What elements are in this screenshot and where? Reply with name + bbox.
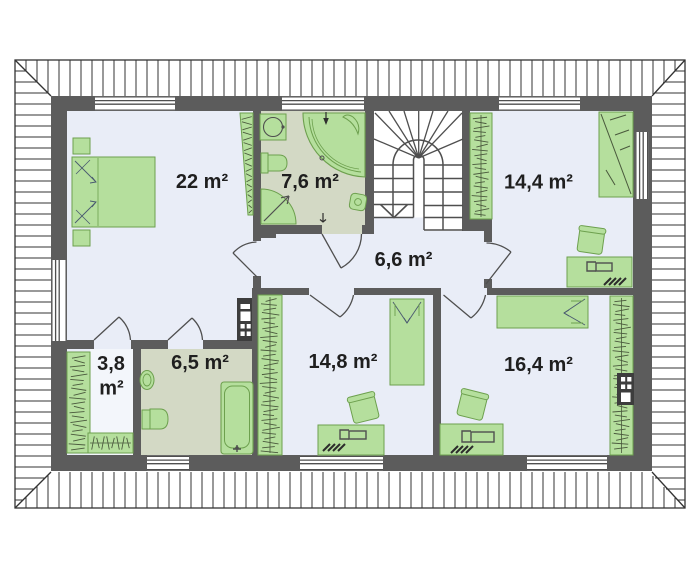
svg-text:6,6 m²: 6,6 m² [375,249,433,271]
svg-text:22 m²: 22 m² [176,171,229,193]
svg-text:6,5 m²: 6,5 m² [171,352,229,374]
svg-text:16,4 m²: 16,4 m² [504,354,573,376]
svg-text:14,4 m²: 14,4 m² [504,172,573,194]
svg-text:m²: m² [99,378,124,400]
svg-text:3,8: 3,8 [97,353,125,375]
svg-text:7,6 m²: 7,6 m² [281,171,339,193]
svg-text:14,8 m²: 14,8 m² [309,351,378,373]
